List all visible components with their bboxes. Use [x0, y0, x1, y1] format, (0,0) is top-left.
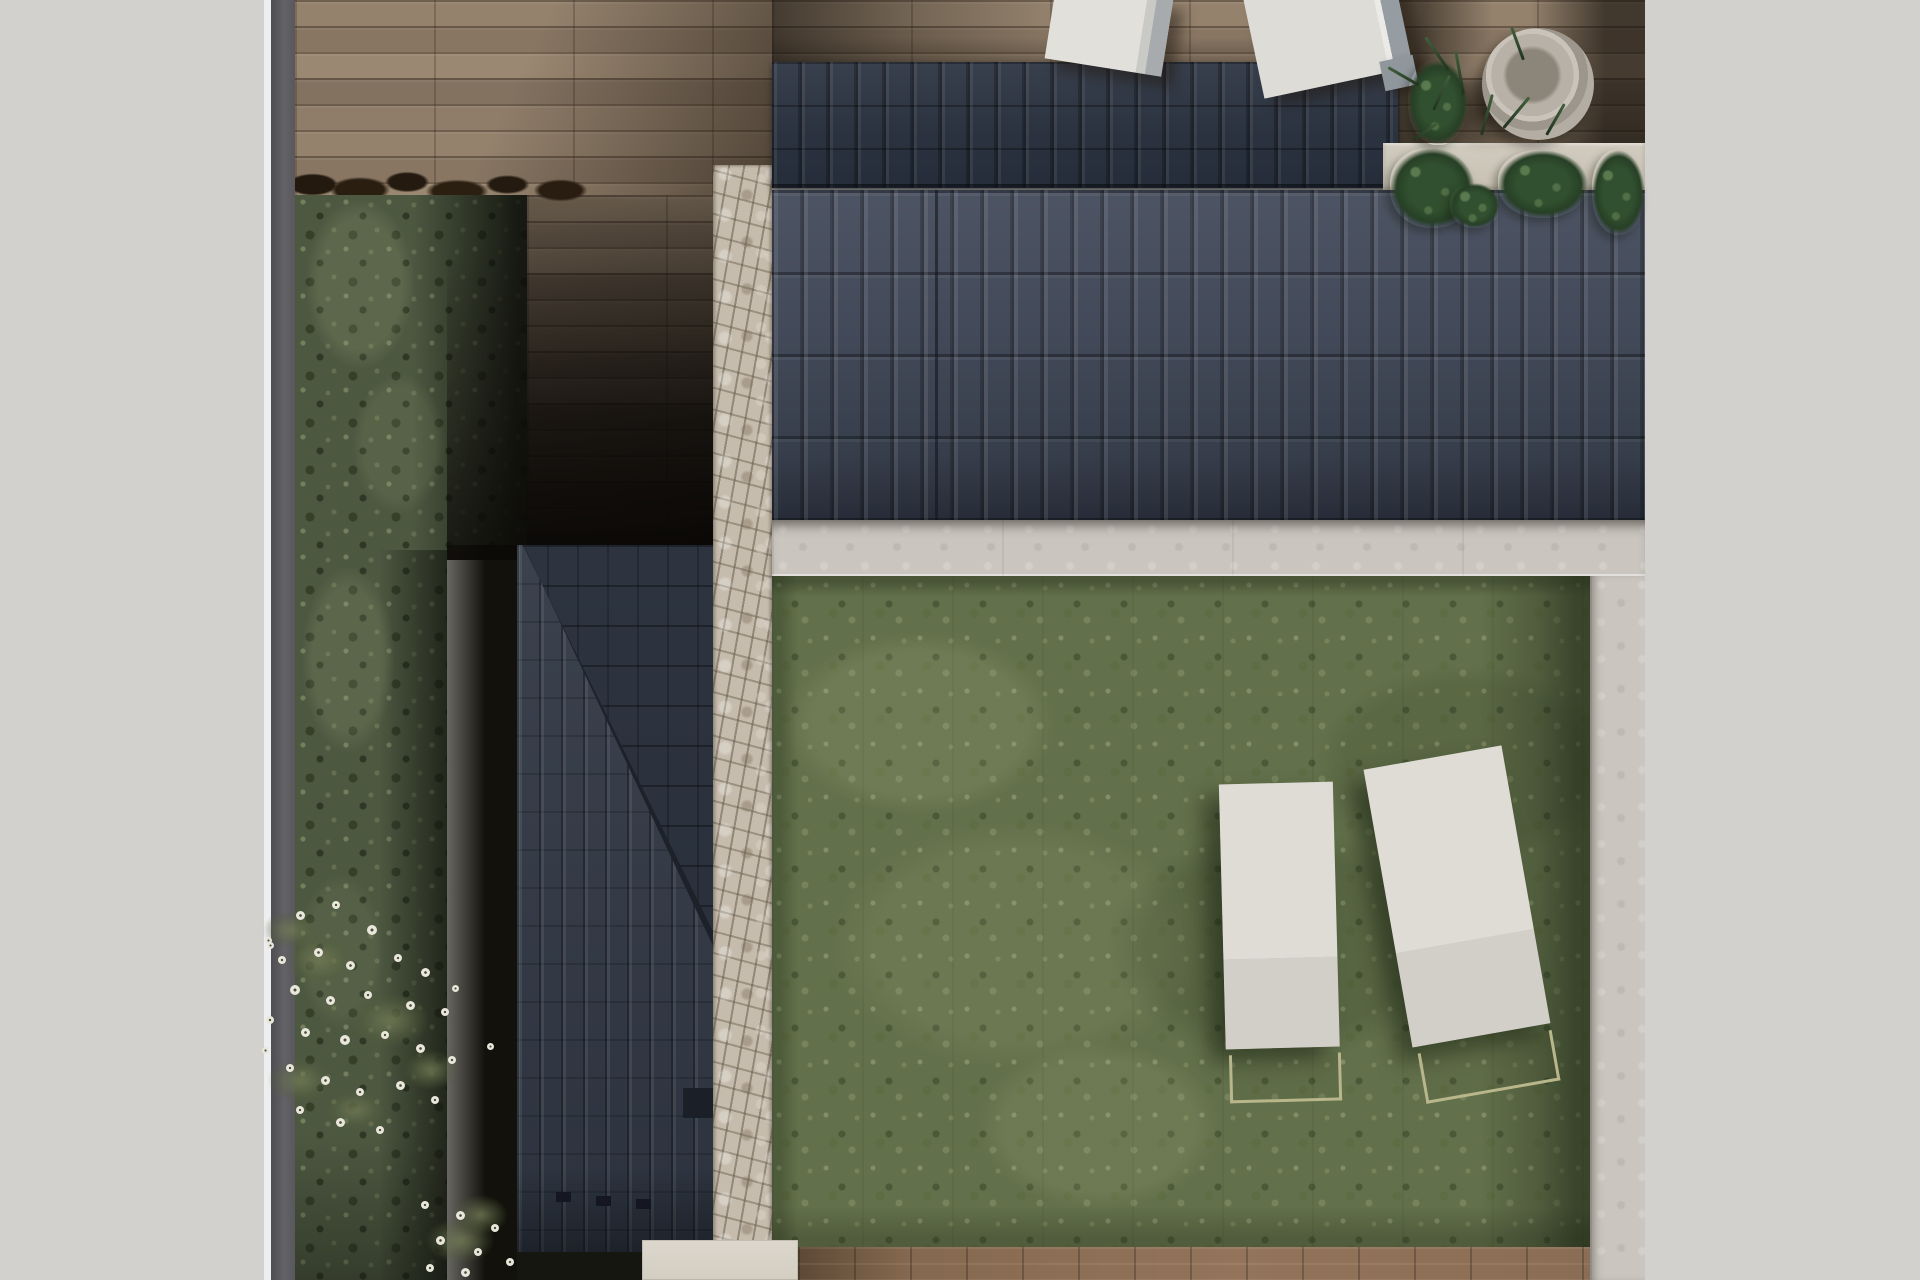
- site-plan-render: [0, 0, 1920, 1280]
- hedge-strip-lower: [295, 550, 447, 1280]
- planter-strip: [1383, 143, 1645, 190]
- potted-plant-foliage: [1495, 40, 1590, 135]
- boundary-wall: [271, 0, 295, 1280]
- plot-edge-highlight: [264, 0, 271, 1280]
- lounger-frame: [1229, 1053, 1342, 1104]
- chimney: [683, 1088, 713, 1118]
- lounger-cushion: [1219, 782, 1340, 1050]
- concrete-slab: [642, 1240, 798, 1280]
- concrete-walkway-vertical: [1590, 576, 1645, 1280]
- roof-panel-seam: [935, 190, 938, 520]
- wood-deck-shadowed: [527, 195, 713, 560]
- roof-hip-plane: [517, 545, 713, 1258]
- screenshot-root: { "meta": { "description": "Top-down 3D …: [0, 0, 1920, 1280]
- concrete-walkway-horizontal: [772, 520, 1645, 576]
- ground-shadow-below-roof: [517, 1252, 647, 1280]
- lower-roof-tiles: [517, 545, 713, 1258]
- main-roof-tiles: [772, 190, 1645, 520]
- bottom-wood-strip: [798, 1247, 1590, 1280]
- stone-wall: [713, 165, 772, 1280]
- sun-lounger-left: [1219, 782, 1341, 1104]
- hedge-roof-gap-shadow: [447, 545, 517, 1280]
- hedge-strip-upper: [295, 195, 527, 550]
